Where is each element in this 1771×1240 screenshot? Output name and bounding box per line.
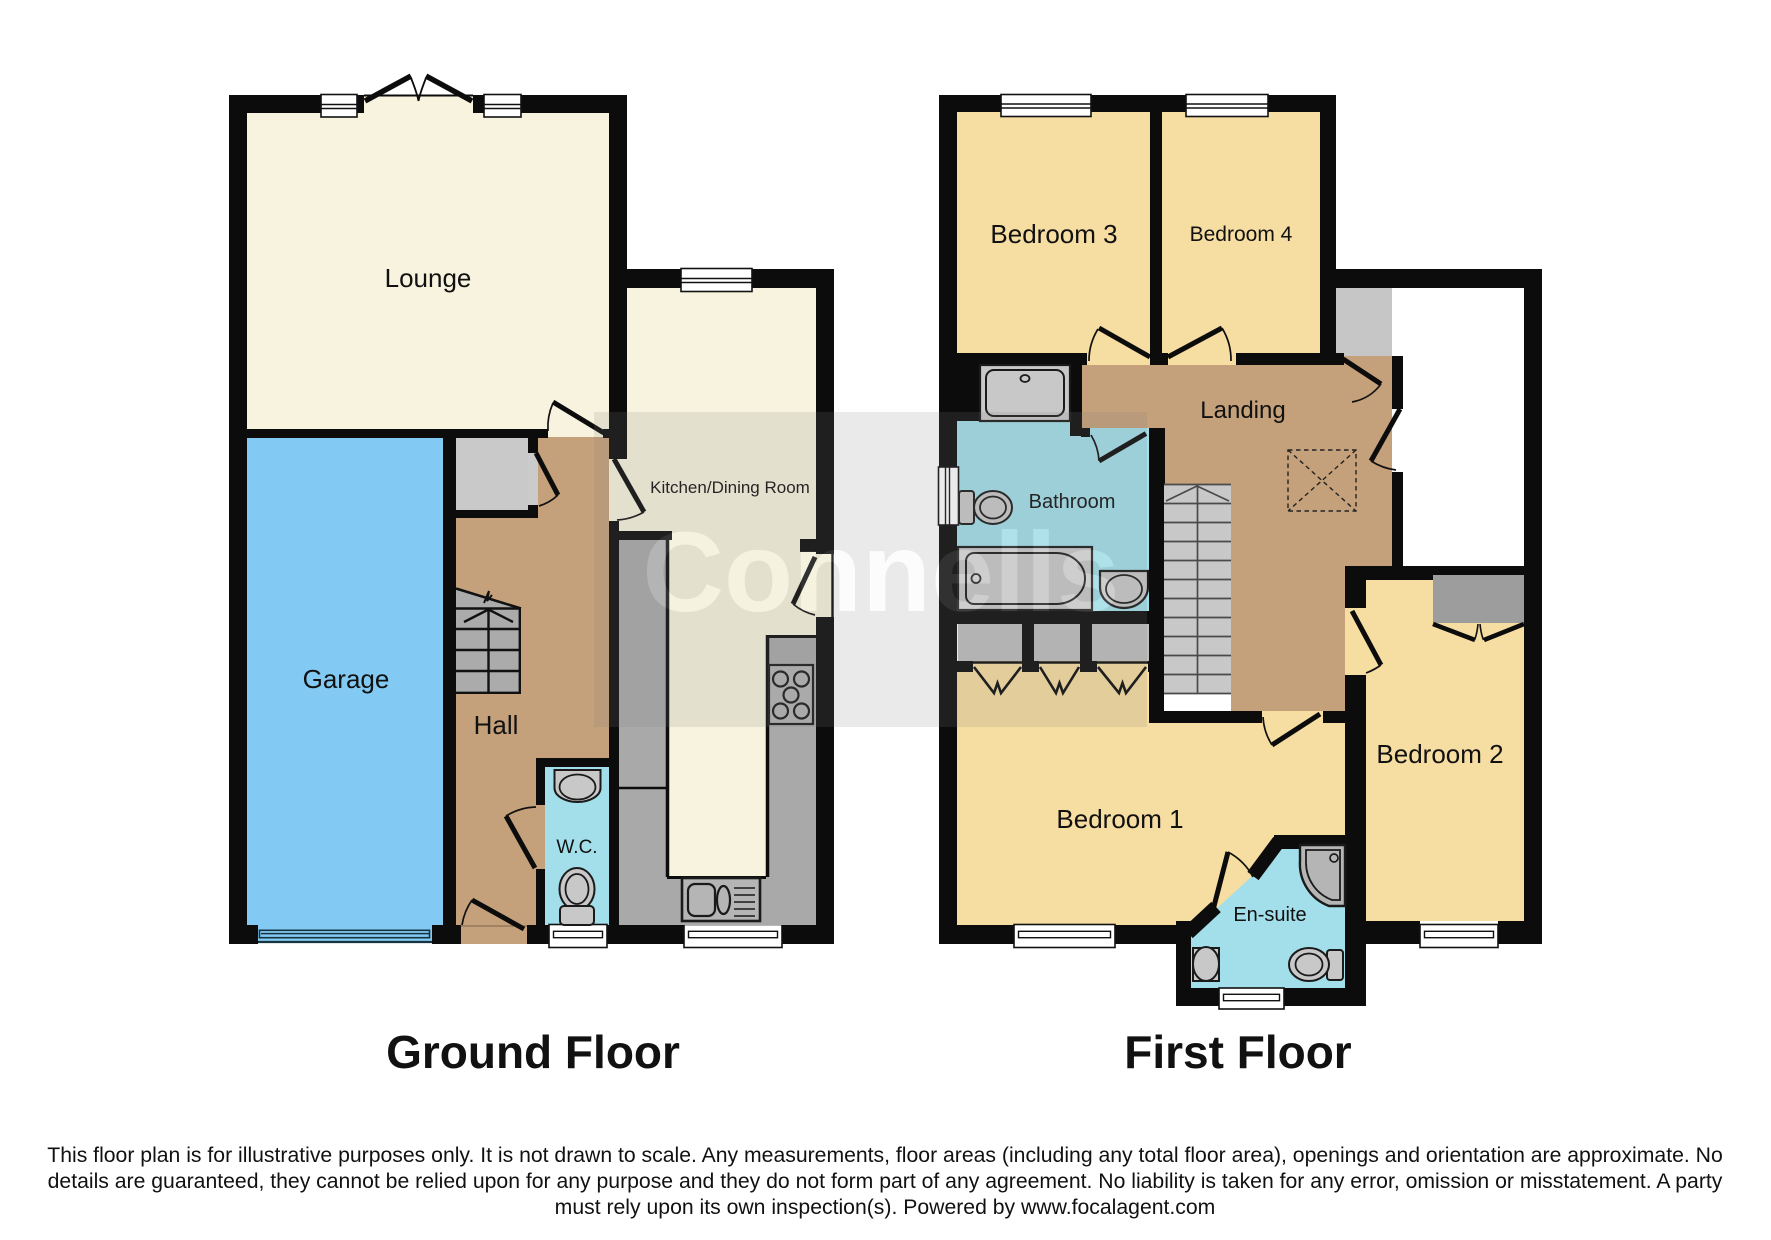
svg-text:Landing: Landing	[1200, 397, 1285, 424]
svg-text:Connells: Connells	[642, 509, 1119, 635]
svg-text:Hall: Hall	[474, 710, 519, 740]
svg-text:Bedroom 2: Bedroom 2	[1376, 739, 1503, 769]
svg-text:Lounge: Lounge	[385, 263, 472, 293]
svg-text:Bedroom 3: Bedroom 3	[990, 219, 1117, 249]
svg-text:En-suite: En-suite	[1233, 904, 1306, 926]
svg-text:Garage: Garage	[303, 664, 390, 694]
svg-text:Bedroom 1: Bedroom 1	[1056, 804, 1183, 834]
svg-text:Ground Floor: Ground Floor	[386, 1026, 680, 1078]
svg-text:First Floor: First Floor	[1124, 1026, 1352, 1078]
svg-text:must rely upon its own inspect: must rely upon its own inspection(s). Po…	[555, 1196, 1216, 1219]
svg-text:Bedroom 4: Bedroom 4	[1190, 223, 1293, 246]
svg-text:This floor plan is for illustr: This floor plan is for illustrative purp…	[47, 1144, 1722, 1167]
svg-text:W.C.: W.C.	[556, 837, 597, 858]
svg-text:details are guaranteed, they c: details are guaranteed, they cannot be r…	[48, 1170, 1723, 1193]
